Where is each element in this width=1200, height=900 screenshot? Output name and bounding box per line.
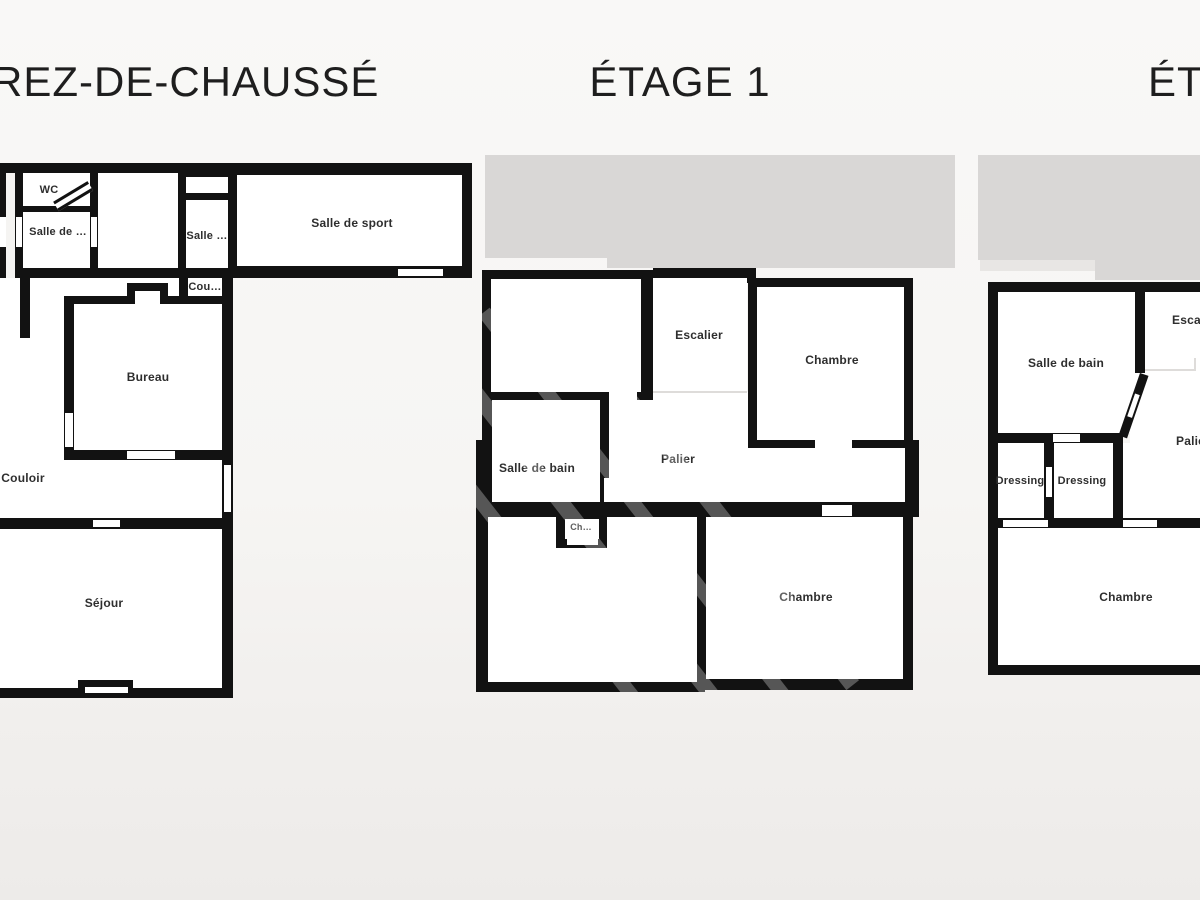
roof-area-light	[980, 260, 1095, 271]
stair-edge-line	[1143, 369, 1196, 371]
room-label-dressing-droit: Dressing	[1058, 475, 1107, 487]
door-opening	[1003, 520, 1048, 527]
room-label-dressing-gauche: Dressing	[996, 475, 1045, 487]
door-opening	[1123, 520, 1157, 527]
door-opening	[1046, 467, 1052, 497]
door-opening	[1053, 434, 1080, 442]
room-label-escalier: Escalier	[1172, 313, 1200, 327]
room-label-salle-de-bain: Salle de bain	[1028, 356, 1104, 370]
wall-segment	[988, 665, 1200, 675]
stair-edge-line	[1194, 358, 1196, 371]
room-area-palier	[1123, 443, 1133, 518]
room-label-palier: Palier	[1176, 434, 1200, 448]
wall-segment	[988, 282, 1200, 292]
roof-area	[1095, 260, 1200, 280]
floor2-plan: Salle de bain Escalier Palier Dressing D…	[0, 0, 1200, 900]
room-label-chambre: Chambre	[1099, 590, 1152, 604]
wall-segment	[1135, 282, 1145, 373]
floorplan-sheet: REZ-DE-CHAUSSÉ ÉTAGE 1 ÉTA	[0, 0, 1200, 900]
wall-segment	[1113, 437, 1123, 518]
roof-area	[978, 155, 1200, 260]
